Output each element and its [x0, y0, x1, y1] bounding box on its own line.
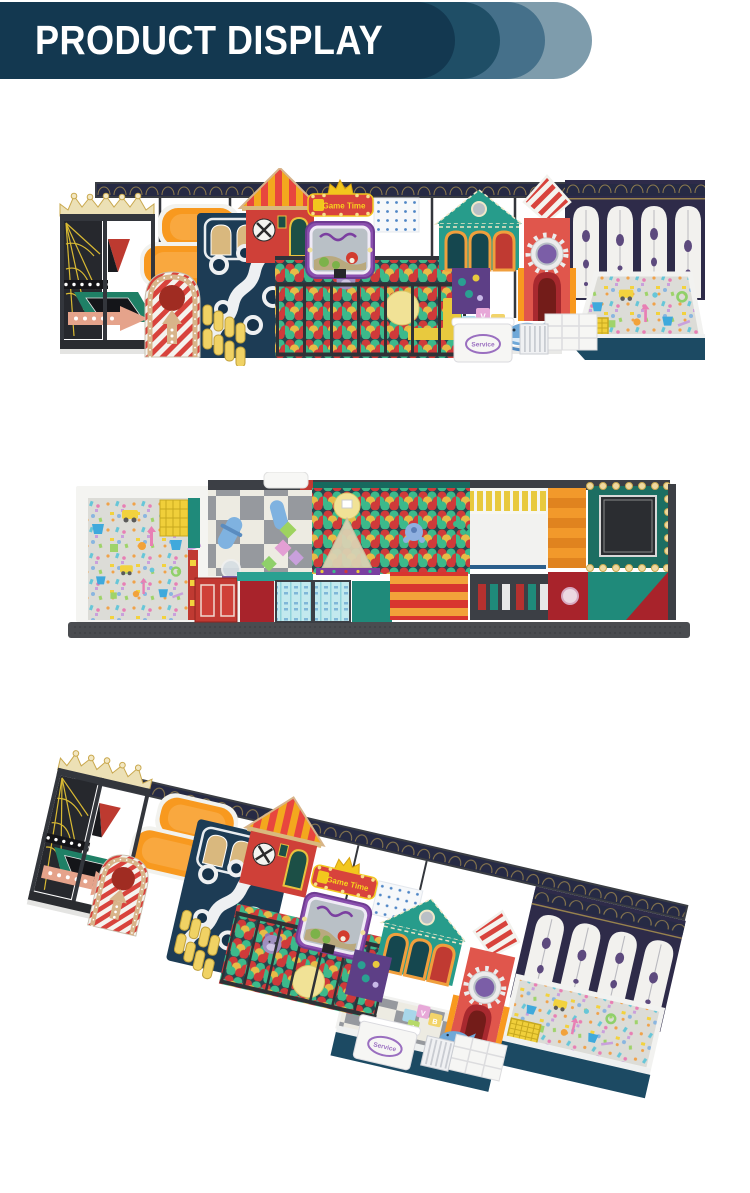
- marquee-arch-door: [145, 272, 200, 357]
- gate-perspective: [421, 1036, 455, 1072]
- product-image-top-view: [0, 472, 750, 644]
- game-sign-perspective: [310, 850, 381, 900]
- ladder-bridge-plan: [470, 488, 546, 514]
- service-desk: [452, 318, 514, 362]
- blower-panel-1: [276, 581, 312, 622]
- striped-mat-plan: [390, 572, 468, 620]
- blower-panel-2: [314, 581, 350, 622]
- trampoline-mat: [600, 496, 656, 556]
- product-image-front-view: [0, 168, 750, 366]
- base-bar: [68, 622, 690, 638]
- cubby-shelf: [545, 314, 597, 350]
- play-ball: [562, 588, 578, 604]
- top-view-illustration: [0, 472, 750, 644]
- perspective-view-illustration: [0, 742, 750, 1100]
- product-display-page: PRODUCT DISPLAY: [0, 0, 750, 1193]
- purple-play-wall: [452, 268, 490, 314]
- front-view-illustration: [0, 168, 750, 366]
- page-title: PRODUCT DISPLAY: [35, 2, 383, 79]
- gear-clock-tower: [518, 176, 576, 321]
- teal-house: [436, 190, 522, 270]
- slide-entry-slab: [264, 472, 308, 488]
- safety-gate: [520, 324, 548, 354]
- product-image-perspective-view: [0, 742, 750, 1100]
- interactive-game-screen: [306, 222, 374, 278]
- slide-runout-plan: [470, 514, 546, 568]
- dotted-lattice: [374, 198, 419, 232]
